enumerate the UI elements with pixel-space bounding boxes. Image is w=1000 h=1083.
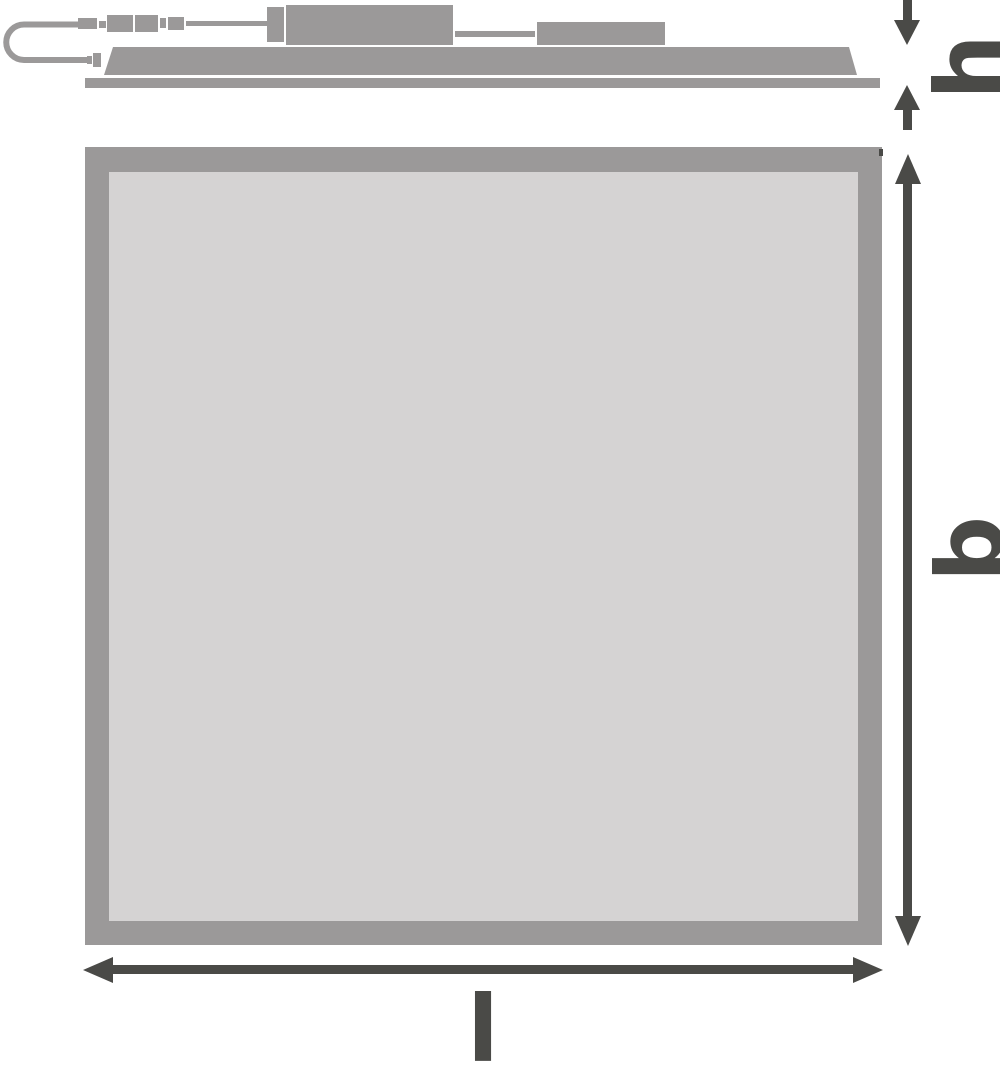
l-dimension-label: l bbox=[467, 984, 499, 1076]
dimension-h: h bbox=[894, 0, 1000, 140]
cable-connector-icon bbox=[78, 18, 97, 29]
panel-front-plate bbox=[85, 78, 880, 88]
panel-profile bbox=[104, 47, 857, 75]
l-arrow-left-icon bbox=[83, 957, 113, 983]
l-arrow-shaft bbox=[111, 965, 855, 974]
cable-connector-icon bbox=[168, 17, 184, 30]
h-arrow-shaft bbox=[903, 109, 912, 130]
panel-plug-icon bbox=[87, 56, 92, 64]
cable-connector-icon bbox=[160, 18, 166, 28]
cable-segment bbox=[186, 21, 267, 26]
h-arrow-shaft bbox=[903, 0, 912, 21]
cable-connector-icon bbox=[107, 15, 133, 32]
driver-input-connector-icon bbox=[267, 7, 284, 42]
side-view bbox=[0, 0, 1000, 140]
dimension-l: l bbox=[83, 957, 883, 1063]
b-dimension-label: b bbox=[925, 516, 1000, 582]
power-cable-loop-icon bbox=[0, 0, 120, 90]
h-dimension-label: h bbox=[924, 34, 1000, 100]
dimension-drawing: h b l bbox=[0, 0, 1000, 1063]
b-arrow-down-icon bbox=[895, 916, 921, 946]
junction-box bbox=[537, 22, 665, 45]
driver-output-wire bbox=[455, 31, 535, 37]
panel-plug-icon bbox=[93, 53, 101, 67]
dimension-b: b bbox=[895, 154, 1000, 946]
l-arrow-right-icon bbox=[853, 957, 883, 983]
cable-connector-icon bbox=[135, 15, 158, 32]
b-arrow-up-icon bbox=[895, 154, 921, 184]
cable-connector-icon bbox=[99, 21, 106, 28]
panel-light-surface bbox=[109, 172, 858, 921]
tick-mark bbox=[879, 149, 883, 156]
b-arrow-shaft bbox=[903, 182, 912, 918]
driver-box bbox=[286, 5, 453, 45]
